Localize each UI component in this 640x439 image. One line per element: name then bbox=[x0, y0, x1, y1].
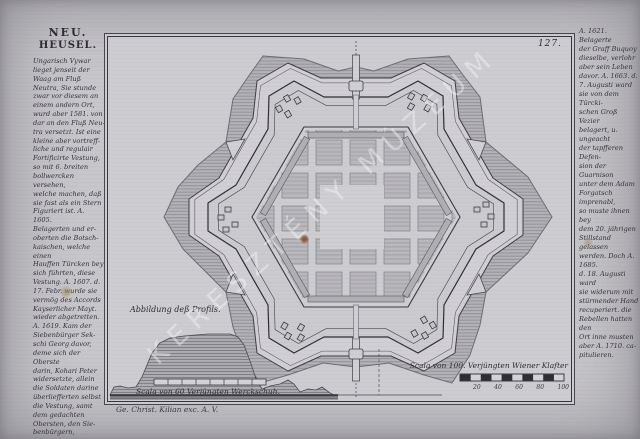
title-block: NEU. HEUSEL. bbox=[33, 26, 103, 51]
scale-tick: 100 bbox=[558, 384, 569, 391]
map-scale-ticks: 20 40 60 80 100 bbox=[473, 384, 569, 391]
profile-scale-label: Scala von 60 Verjüngten Werckschuh. bbox=[136, 387, 280, 396]
left-column-text: Ungarisch Vywar lieget jenseit der Waag … bbox=[33, 57, 105, 437]
market-square bbox=[320, 185, 384, 249]
page-number: 127. bbox=[538, 39, 562, 49]
profile-scale-bar bbox=[154, 379, 266, 385]
engraver-imprint: Ge. Christ. Kilian exc. A. V. bbox=[116, 405, 218, 414]
scale-tick: 40 bbox=[494, 384, 502, 391]
engraved-map-page: NEU. HEUSEL. Ungarisch Vywar lieget jens… bbox=[0, 0, 640, 439]
map-plate-border: 127. Abbildung deß Profils. Scala von 60… bbox=[107, 36, 572, 402]
fortress-plan-engraving bbox=[108, 37, 572, 402]
profile-caption: Abbildung deß Profils. bbox=[130, 305, 221, 314]
map-scale-label: Scala von 100. Verjüngten Wiener Klafter bbox=[408, 361, 568, 370]
right-column-text: A. 1621. Belagerte der Graff Buquoy dies… bbox=[579, 27, 639, 360]
scale-tick: 20 bbox=[473, 384, 481, 391]
map-plate: 127. Abbildung deß Profils. Scala von 60… bbox=[104, 33, 575, 405]
map-scale-bar bbox=[460, 374, 564, 381]
scale-tick: 80 bbox=[536, 384, 544, 391]
page-title-line2: HEUSEL. bbox=[33, 40, 103, 51]
scale-tick: 60 bbox=[515, 384, 523, 391]
page-title: NEU. bbox=[33, 26, 103, 39]
